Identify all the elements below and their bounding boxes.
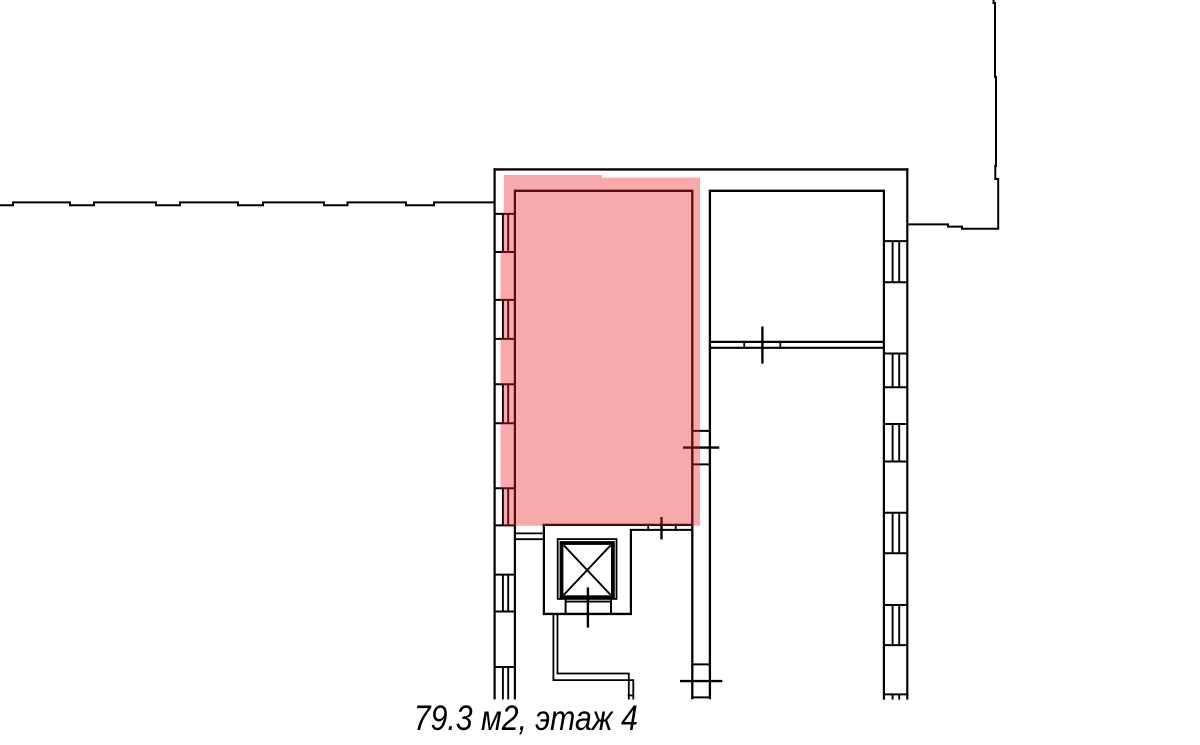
svg-text:79.3 м2, этаж 4: 79.3 м2, этаж 4 <box>414 699 638 738</box>
